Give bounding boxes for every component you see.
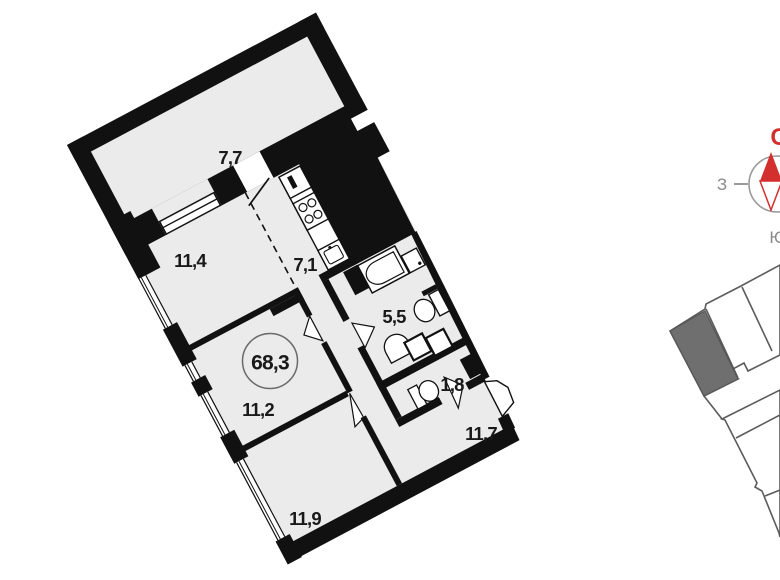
svg-text:С: С (770, 124, 780, 151)
svg-text:З: З (717, 175, 727, 194)
svg-text:7,7: 7,7 (218, 147, 242, 168)
svg-text:1,8: 1,8 (440, 374, 464, 395)
svg-text:5,5: 5,5 (382, 306, 406, 327)
svg-text:11,9: 11,9 (289, 508, 321, 529)
svg-text:11,7: 11,7 (465, 423, 497, 444)
svg-text:11,4: 11,4 (174, 250, 207, 271)
svg-text:68,3: 68,3 (251, 352, 289, 375)
svg-text:Ю: Ю (769, 228, 780, 247)
svg-text:11,2: 11,2 (242, 399, 274, 420)
svg-text:7,1: 7,1 (293, 254, 317, 275)
